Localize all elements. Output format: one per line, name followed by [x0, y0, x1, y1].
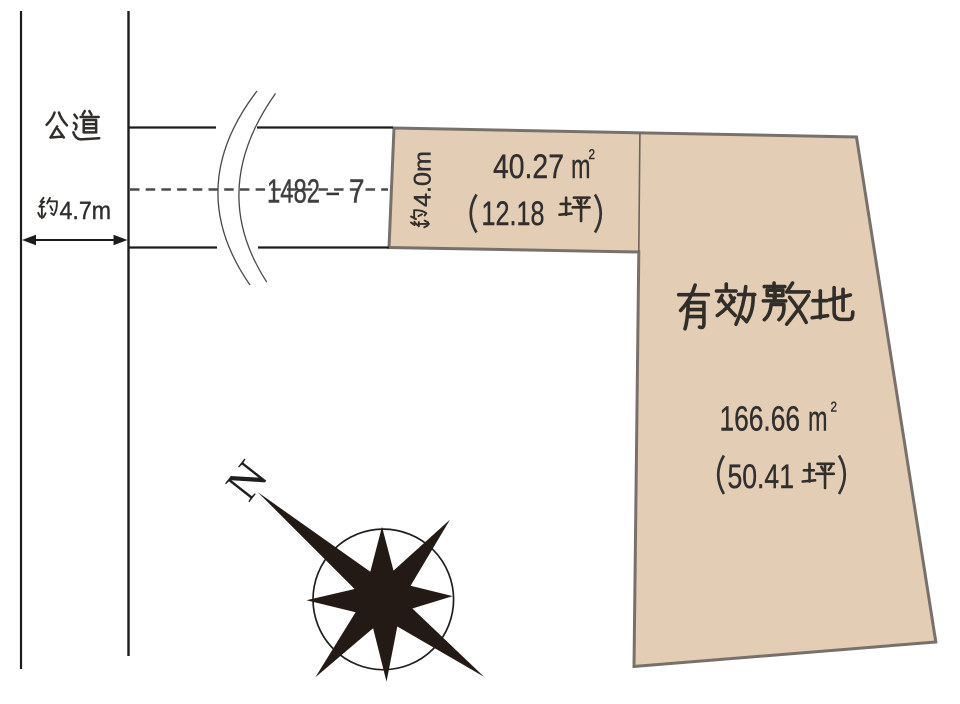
svg-text:7: 7	[349, 174, 365, 211]
svg-text:4.0m: 4.0m	[410, 151, 437, 207]
svg-text:2: 2	[831, 399, 838, 415]
svg-text:4.7m: 4.7m	[60, 197, 112, 225]
svg-text:50.41: 50.41	[728, 458, 795, 496]
svg-text:m: m	[808, 400, 828, 439]
svg-text:40.27: 40.27	[493, 148, 564, 186]
svg-text:2: 2	[589, 146, 596, 162]
svg-text:166.66: 166.66	[720, 400, 801, 439]
svg-text:1482: 1482	[267, 174, 320, 211]
svg-text:12.18: 12.18	[482, 195, 545, 233]
